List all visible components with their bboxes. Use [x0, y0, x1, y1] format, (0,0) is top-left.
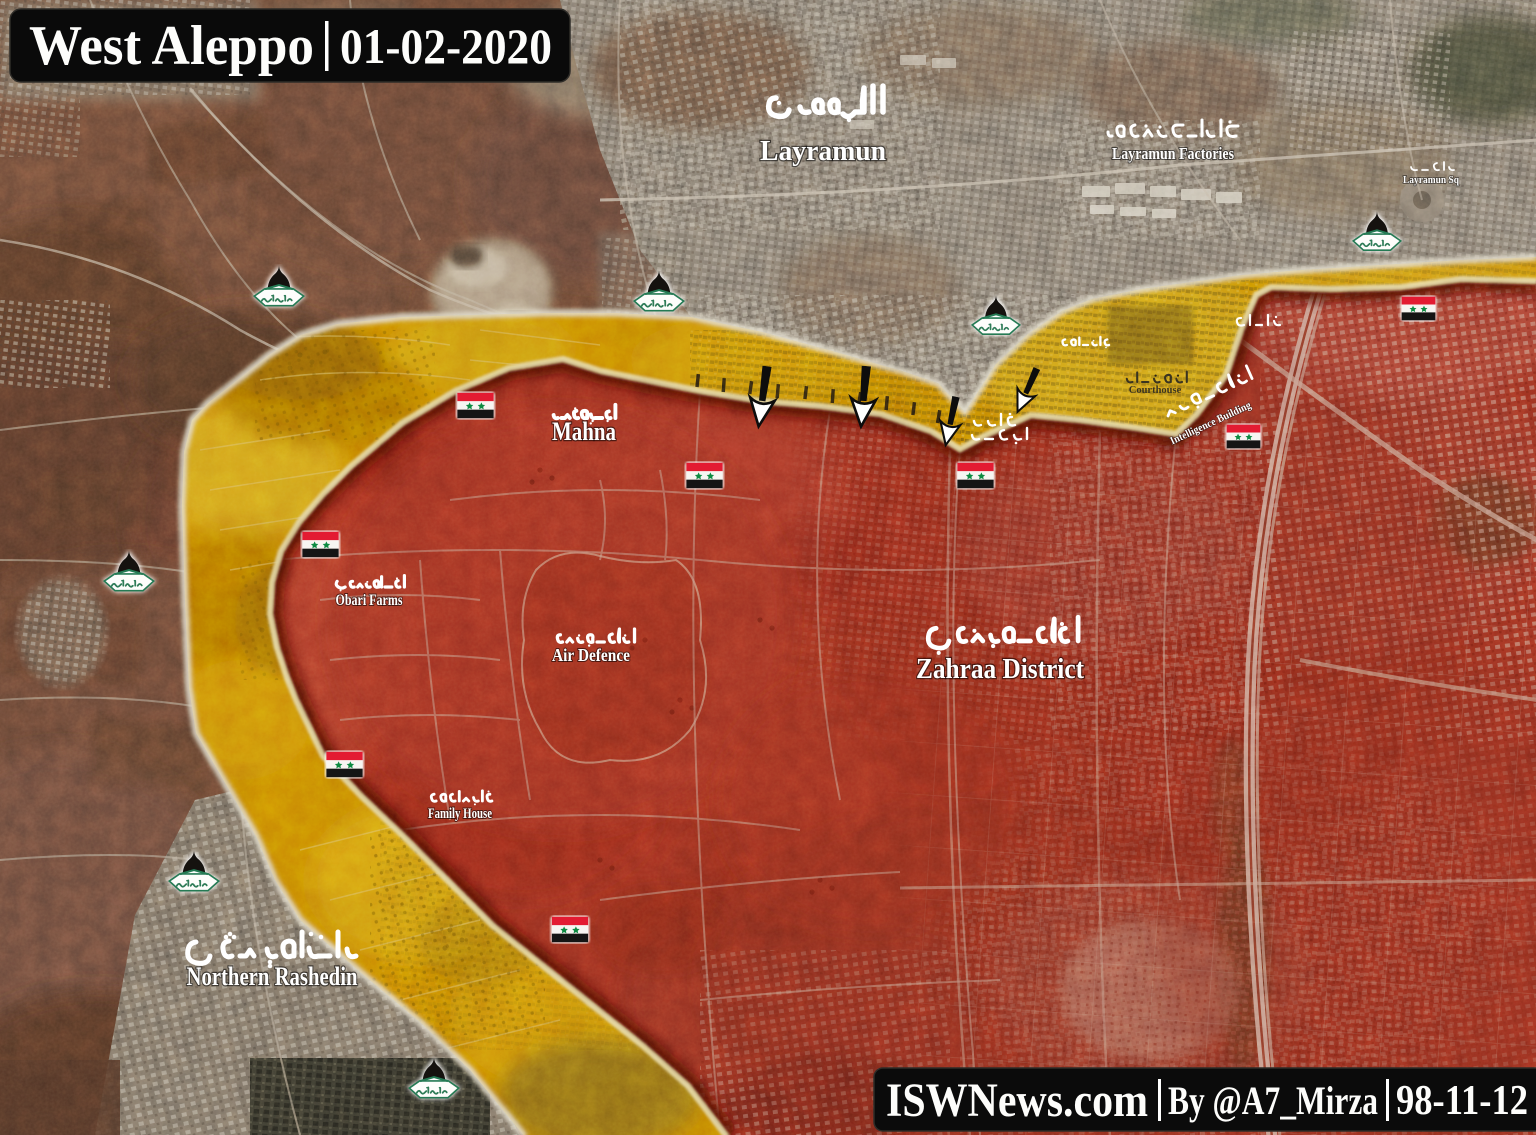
- svg-text:Air Defence: Air Defence: [552, 645, 630, 665]
- svg-text:ISWNews.com: ISWNews.com: [886, 1074, 1148, 1127]
- svg-text:Northern Rashedin: Northern Rashedin: [187, 962, 358, 991]
- svg-text:Obari Farms: Obari Farms: [336, 592, 403, 609]
- svg-text:Zahraa District: Zahraa District: [916, 654, 1085, 685]
- svg-text:By @A7_Mirza: By @A7_Mirza: [1168, 1078, 1378, 1123]
- svg-text:Layramun Factories: Layramun Factories: [1112, 144, 1234, 163]
- svg-text:98-11-12: 98-11-12: [1396, 1078, 1528, 1124]
- svg-text:Courthouse: Courthouse: [1129, 385, 1182, 396]
- svg-text:Family House: Family House: [428, 806, 492, 822]
- svg-text:West Aleppo: West Aleppo: [29, 15, 314, 77]
- svg-text:01-02-2020: 01-02-2020: [340, 18, 552, 74]
- svg-text:Mahna: Mahna: [552, 417, 616, 446]
- svg-text:Layramun: Layramun: [760, 136, 886, 167]
- svg-text:Layramun Sq: Layramun Sq: [1403, 174, 1460, 186]
